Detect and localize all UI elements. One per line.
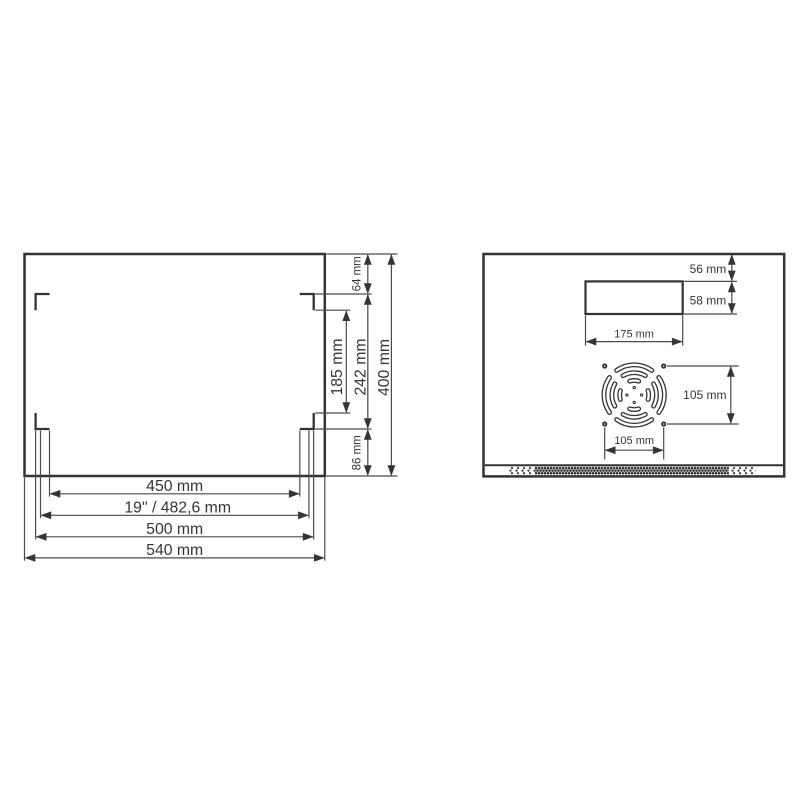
svg-text:540 mm: 540 mm: [146, 542, 203, 559]
svg-text:105 mm: 105 mm: [683, 388, 726, 402]
svg-text:56 mm: 56 mm: [690, 262, 727, 276]
svg-text:500 mm: 500 mm: [146, 521, 203, 538]
svg-text:242 mm: 242 mm: [352, 338, 369, 395]
svg-text:450 mm: 450 mm: [146, 478, 203, 495]
svg-text:58 mm: 58 mm: [690, 293, 727, 307]
svg-text:105 mm: 105 mm: [614, 435, 654, 447]
svg-text:185 mm: 185 mm: [329, 338, 346, 395]
svg-text:64 mm: 64 mm: [351, 256, 363, 291]
svg-text:175 mm: 175 mm: [614, 328, 654, 340]
svg-text:86 mm: 86 mm: [351, 435, 363, 470]
svg-text:19" / 482,6 mm: 19" / 482,6 mm: [124, 500, 231, 517]
svg-text:400 mm: 400 mm: [376, 339, 393, 396]
